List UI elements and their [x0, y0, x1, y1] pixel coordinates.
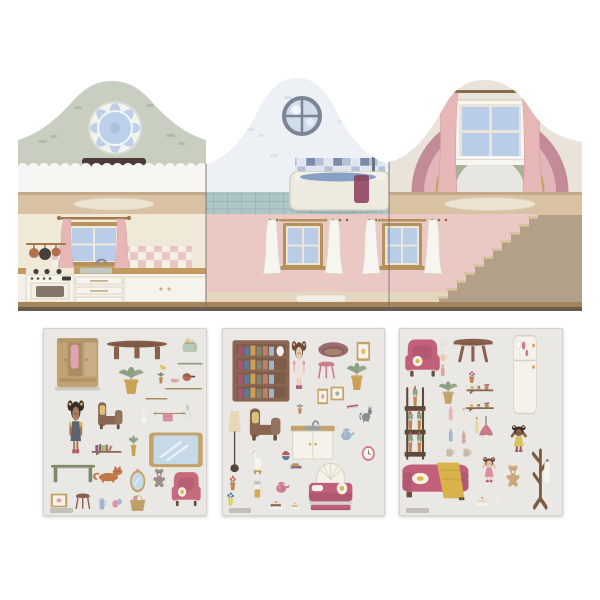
sticker-bookcase[interactable] [230, 339, 292, 403]
sticker-bottle-pink[interactable] [445, 403, 456, 422]
sticker-cake-stand[interactable] [474, 492, 490, 507]
living-window-1 [263, 219, 348, 274]
sticker-cactus-pot[interactable] [156, 371, 166, 384]
sticker-plant-ladder[interactable] [402, 384, 428, 463]
sticker-laundry-basket[interactable] [127, 492, 148, 513]
sticker-cat-grey[interactable] [359, 401, 374, 425]
sticker-flower-vase[interactable] [182, 399, 193, 422]
sticker-wall-clock[interactable] [361, 445, 376, 462]
sticker-small-bottle[interactable] [437, 364, 448, 377]
sticker-pet-bed[interactable] [317, 339, 350, 360]
sticker-fridge[interactable] [507, 334, 543, 417]
sticker-red-book[interactable] [346, 401, 359, 412]
sticker-flower-pot-blue[interactable] [224, 490, 237, 507]
sticker-small-jar-a[interactable] [437, 337, 448, 348]
sticker-pink-stool[interactable] [315, 360, 338, 383]
porthole-window [284, 98, 320, 134]
small-rug [296, 295, 346, 302]
living-window-2 [362, 219, 447, 274]
fold-line-right [388, 162, 390, 307]
page-base [18, 302, 582, 307]
sticker-coat-rack[interactable] [525, 446, 556, 510]
sticker-small-frame-b[interactable] [330, 386, 345, 401]
attic-window [450, 100, 530, 165]
sticker-bottle-blue[interactable] [445, 426, 456, 443]
sticker-small-frame-a[interactable] [317, 388, 328, 405]
sticker-bunny[interactable] [138, 409, 149, 424]
sticker-sheet-2 [222, 328, 385, 516]
sticker-doll-floral-dress[interactable] [286, 339, 312, 392]
sticker-armchair-pink[interactable] [169, 469, 203, 508]
bathtub [290, 172, 390, 214]
sticker-tea-cup[interactable] [492, 495, 505, 506]
sticker-floor-lamp[interactable] [224, 409, 245, 475]
sticker-potted-plant-small[interactable] [127, 433, 140, 457]
attic-floor [18, 192, 206, 214]
sticker-book-stack[interactable] [287, 460, 305, 471]
sheet-code-label [406, 508, 429, 513]
sticker-shelf-plank-long[interactable] [164, 386, 203, 392]
sticker-round-table[interactable] [451, 337, 495, 365]
sticker-yarn-balls[interactable] [110, 493, 125, 512]
sticker-shelf-plank-short[interactable] [145, 396, 168, 402]
sticker-sheet-3 [399, 328, 563, 516]
sticker-toast-plate[interactable] [289, 499, 300, 510]
sticker-plant-in-basket[interactable] [435, 379, 461, 405]
sticker-watering-can[interactable] [338, 424, 356, 443]
sheet-code-label [50, 508, 73, 513]
sticker-cookie-jar[interactable] [250, 478, 265, 501]
sticker-toaster[interactable] [181, 336, 199, 355]
sticker-wall-shelf-jars[interactable] [466, 377, 494, 398]
sticker-potted-plant[interactable] [114, 364, 148, 396]
picket-fence [18, 163, 207, 192]
sticker-tray[interactable] [177, 360, 203, 368]
sticker-wardrobe[interactable] [53, 337, 102, 392]
sticker-pink-bed[interactable] [307, 460, 354, 515]
attic-floor [389, 192, 582, 214]
sticker-mouse-toy[interactable] [168, 375, 181, 384]
sticker-doll-overalls[interactable] [61, 398, 91, 456]
sticker-goose-toy[interactable] [251, 445, 264, 475]
sticker-sheet-1 [43, 328, 207, 516]
cabinet-doors [124, 277, 206, 302]
sticker-sofa-with-blanket[interactable] [401, 456, 470, 503]
sticker-armchair-brown[interactable] [246, 407, 285, 443]
stove [26, 268, 74, 302]
sticker-coffee-table[interactable] [105, 339, 169, 362]
sticker-pendant-lamp[interactable] [473, 416, 499, 448]
sticker-teddy-grey[interactable] [151, 467, 167, 488]
sticker-armchair-brown[interactable] [95, 401, 126, 431]
sticker-teapot[interactable] [273, 478, 291, 495]
fold-line-left [205, 164, 207, 307]
sticker-wall-shelf-books[interactable] [91, 439, 122, 458]
sticker-green-desk[interactable] [50, 460, 96, 484]
sheet-code-label [229, 508, 252, 513]
dollhouse-sticker-book-photo [0, 0, 600, 600]
sticker-duck-toy[interactable] [158, 362, 168, 371]
sticker-sink-cabinet[interactable] [290, 413, 336, 462]
sticker-teddy-tan[interactable] [504, 463, 522, 487]
sticker-picture-frame[interactable] [50, 493, 68, 508]
sticker-doll-cheering-pink[interactable] [476, 454, 502, 484]
sticker-potted-plant[interactable] [343, 360, 371, 392]
sticker-toothbrush-cup[interactable] [97, 493, 107, 512]
panel-kitchen-attic [18, 76, 207, 311]
sticker-cake-plate[interactable] [266, 497, 286, 510]
sticker-copper-pot[interactable] [181, 367, 196, 384]
kitchen-window [57, 216, 131, 270]
kitchen-room [18, 214, 206, 302]
rosette-window [89, 102, 141, 154]
sticker-gold-frame[interactable] [356, 341, 371, 362]
sticker-bottle-rose[interactable] [458, 428, 469, 445]
sticker-round-mirror[interactable] [127, 465, 148, 493]
sticker-wall-mirror[interactable] [148, 431, 204, 469]
dollhouse-panels [18, 76, 582, 311]
sticker-small-jar-b[interactable] [438, 351, 448, 362]
sticker-towel-rail[interactable] [153, 409, 186, 424]
sticker-bottle-cream[interactable] [458, 407, 469, 426]
sticker-stool[interactable] [73, 492, 93, 513]
sticker-cat-orange[interactable] [92, 461, 126, 485]
